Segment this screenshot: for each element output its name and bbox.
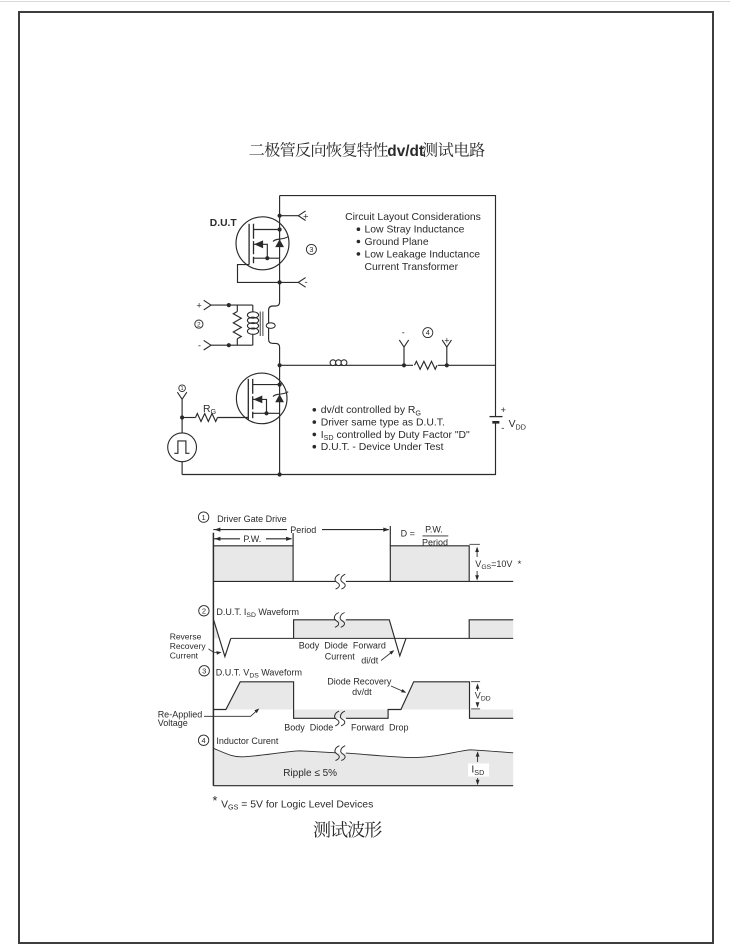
svg-text:di/dt: di/dt [361, 656, 379, 666]
svg-text:2: 2 [197, 321, 201, 328]
svg-text:3: 3 [202, 667, 206, 676]
svg-text:-: - [501, 423, 504, 434]
svg-text:*: * [213, 794, 218, 808]
svg-text:+: + [303, 211, 309, 222]
svg-text:VGS = 5V for Logic Level Devic: VGS = 5V for Logic Level Devices [221, 799, 373, 811]
svg-text:Ripple ≤ 5%: Ripple ≤ 5% [283, 768, 337, 779]
svg-text:-: - [305, 277, 308, 288]
svg-text:3: 3 [309, 245, 313, 254]
svg-text:dv/dt: dv/dt [387, 143, 424, 160]
svg-text:Forward Drop: Forward Drop [351, 722, 409, 732]
svg-text:2: 2 [202, 607, 206, 616]
svg-text:Low Stray Inductance: Low Stray Inductance [365, 225, 465, 236]
svg-text:D.U.T: D.U.T [210, 218, 238, 229]
svg-text:VGS=10V: VGS=10V [475, 559, 512, 571]
svg-text:Current: Current [325, 652, 356, 662]
svg-text:Period: Period [290, 525, 316, 535]
svg-text:Diode Recovery: Diode Recovery [327, 677, 392, 687]
svg-text:Reverse: Reverse [170, 631, 202, 641]
svg-text:Low Leakage Inductance: Low Leakage Inductance [365, 249, 481, 260]
svg-text:1: 1 [202, 513, 206, 522]
svg-text:4: 4 [426, 328, 430, 337]
svg-text:Period: Period [422, 537, 448, 547]
svg-text:ISD controlled by Duty Factor: ISD controlled by Duty Factor "D" [321, 430, 470, 442]
svg-text:Ground Plane: Ground Plane [365, 237, 429, 248]
svg-text:-: - [198, 340, 201, 350]
svg-text:P.W.: P.W. [425, 524, 443, 534]
svg-text:Recovery: Recovery [170, 641, 207, 651]
svg-text:4: 4 [202, 736, 206, 745]
svg-text:Current Transformer: Current Transformer [365, 262, 459, 273]
svg-text:Driver same type as D.U.T.: Driver same type as D.U.T. [321, 418, 445, 429]
svg-text:1: 1 [181, 386, 184, 392]
svg-text:Circuit Layout Considerations: Circuit Layout Considerations [345, 212, 481, 223]
svg-text:Body Diode: Body Diode [284, 722, 333, 732]
svg-text:D =: D = [401, 528, 415, 538]
svg-text:VDD: VDD [509, 419, 526, 431]
svg-text:dv/dt controlled by RG: dv/dt controlled by RG [321, 405, 422, 417]
svg-text:P.W.: P.W. [243, 534, 261, 544]
svg-text:+: + [501, 405, 507, 416]
svg-text:RG: RG [203, 404, 217, 416]
svg-text:+: + [444, 335, 449, 345]
svg-text:Driver Gate Drive: Driver Gate Drive [217, 514, 287, 524]
svg-text:+: + [197, 300, 202, 310]
svg-text:D.U.T. VDS Waveform: D.U.T. VDS Waveform [216, 668, 302, 680]
svg-text:VDD: VDD [475, 690, 491, 702]
svg-text:D.U.T. - Device Under Test: D.U.T. - Device Under Test [321, 442, 444, 453]
svg-text:-: - [402, 327, 405, 337]
svg-text:Current: Current [170, 651, 199, 661]
svg-text:D.U.T. ISD Waveform: D.U.T. ISD Waveform [216, 607, 299, 619]
svg-text:dv/dt: dv/dt [352, 687, 372, 697]
svg-text:*: * [518, 559, 522, 570]
svg-text:Inductor Curent: Inductor Curent [216, 736, 279, 746]
svg-text:Body Diode Forward: Body Diode Forward [299, 640, 386, 650]
svg-text:Voltage: Voltage [158, 718, 188, 728]
